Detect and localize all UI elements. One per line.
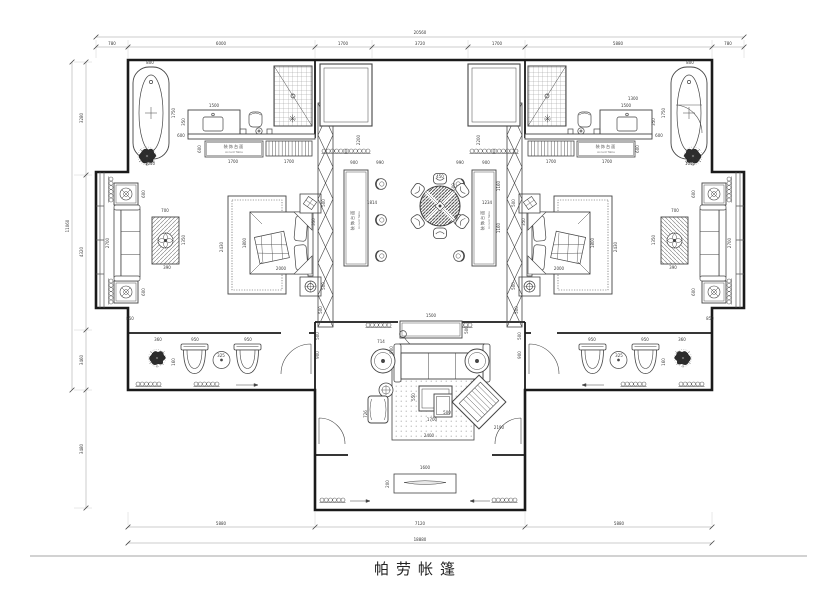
dimension-label: 900 [482,160,490,165]
dimension-label: 500 [321,282,326,290]
closet [320,64,372,154]
dimension-label: 3280 [79,112,84,123]
dining-area [410,174,471,239]
dimension-label: 1750 [171,107,176,118]
dimension-label: 350 [311,218,316,226]
dimension-label: 1500 [621,103,632,108]
dimension-label: 780 [108,41,116,46]
dimension-label: 1800 [590,237,595,248]
dimension-label: 1234 [482,200,493,205]
dimension-label: 2190 [494,425,505,430]
dimension-label: 800 [686,60,694,65]
dimension-label: 1160 [496,180,501,191]
dimension-label: 950 [641,337,649,342]
living-area [319,321,521,503]
dimension-label: 2430 [613,241,618,252]
dimension-label: 7120 [415,521,426,526]
dimension-label: 325 [615,353,623,358]
dimension-label: 2200 [476,134,481,145]
dimension-label: 600 [635,145,640,153]
dimension-label: 350 [181,118,186,126]
dimension-label: 5880 [216,521,227,526]
bay-sofa [114,205,140,281]
dimension-label: 2000 [554,266,565,271]
dimension-label: 950 [588,337,596,342]
plan-title: 帕劳帐篷 [374,560,462,578]
dimension-label: 600 [451,183,456,191]
dimension-label: 500 [517,332,522,340]
dimension-label: 700 [161,208,169,213]
dimension-label: 1160 [496,222,501,233]
dimension-label: 1700 [228,159,239,164]
dimension-label: 450 [436,174,444,179]
dimension-label: 1700 [427,417,438,422]
porch-door-right [495,418,521,444]
dimension-label: 18880 [414,537,427,542]
dimension-label: 900 [350,160,358,165]
dimension-label: 700 [671,208,679,213]
dimension-label: 360 [678,337,686,342]
lattice-cell [318,167,333,199]
accent-label-en-console-right: Accent Table [487,211,491,229]
dimension-label: 500 [321,199,326,207]
dimension-label: 1500 [426,313,437,318]
dimension-label: 600 [141,190,146,198]
dimension-label: 900 [517,351,522,359]
accent-label-zh-right: 装饰台面 [596,143,617,150]
dimension-label: 1350 [651,234,656,245]
dimension-label: 850 [126,316,134,321]
dimension-label: 3460 [79,354,84,365]
dimension-label: 1700 [284,159,295,164]
lattice-cell [318,135,333,167]
dimension-label: 6000 [216,41,227,46]
dimension-label: 500 [318,306,323,314]
dimension-label: 325 [217,353,225,358]
dimension-label: 2200 [356,134,361,145]
dimension-label: 1600 [420,465,431,470]
dimension-label: 160 [171,358,176,366]
deco-stool [379,383,393,397]
dimension-label: 600 [141,288,146,296]
dimension-label: 950 [191,337,199,342]
accent-label-zh-console-right: 装饰台面 [479,210,486,231]
accent-label-en-console-left: Accent Table [357,211,361,229]
dimension-label: 600 [197,145,202,153]
dimension-label: 780 [724,41,732,46]
dimension-label: 1800 [242,237,247,248]
dimension-label: 1350 [181,234,186,245]
dimension-label: 500 [511,282,516,290]
dimension-label: 726 [363,410,368,418]
dimension-label: 990 [376,160,384,165]
dimension-label: 2430 [219,241,224,252]
dimension-label: 600 [691,288,696,296]
dimension-label: 1300 [628,96,639,101]
dimension-label: 350 [651,118,656,126]
accent-label-zh-left: 装饰台面 [224,143,245,150]
dimension-label: 5880 [613,41,624,46]
dimension-label: 2700 [105,237,110,248]
dimension-label: 990 [456,160,464,165]
dimension-label: 714 [377,339,385,344]
dimension-label: 900 [389,346,394,354]
dining-chair [434,228,447,239]
dimension-label: 2400 [424,433,435,438]
dimension-label: 3720 [415,41,426,46]
dimension-label: 1040 [145,161,156,166]
dimension-label: 1700 [492,41,503,46]
dimension-label: 950 [244,337,252,342]
drawing-sheet: 2056078060001700372017005880780588071205… [0,0,837,592]
dimension-label: 20560 [414,30,427,35]
dimension-label: 900 [315,351,320,359]
lounge-door [281,344,311,374]
radiator-cabinet [266,141,312,156]
dimension-label: 1700 [602,159,613,164]
lounge-area [136,344,312,387]
dimension-label: 1700 [546,159,557,164]
lattice-cell [318,231,333,263]
bathtub [133,67,169,159]
dimension-label: 500 [315,332,320,340]
accent-label-zh-console-left: 装饰台面 [349,210,356,231]
dimension-label: 1040 [685,161,696,166]
dimension-label: 2700 [727,237,732,248]
dimension-label: 600 [655,133,663,138]
dimension-label: 390 [669,265,677,270]
porch-step [394,474,456,493]
dimension-label: 2000 [276,266,287,271]
dimension-label: 500 [443,410,451,415]
sofa-console [400,321,462,338]
round-side-table-right [465,349,489,373]
dimension-label: 850 [706,316,714,321]
dimension-label: 1750 [661,107,666,118]
floor-plan: 2056078060001700372017005880780588071205… [0,0,837,592]
dimension-label: 600 [177,133,185,138]
porch-door-left [319,418,345,444]
dimension-label: 1814 [367,200,378,205]
dimension-label: 500 [514,306,519,314]
dimension-label: 360 [154,337,162,342]
dimension-label: 3480 [79,443,84,454]
dimension-label: 4320 [79,246,84,257]
dimension-label: 500 [464,326,469,334]
dimension-label: 550 [411,393,416,401]
dimension-label: 350 [521,218,526,226]
accent-label-en-left: Accent Table [225,150,243,154]
dimension-label: 1500 [209,103,220,108]
shower [274,66,312,126]
dimension-label: 600 [691,190,696,198]
dimension-label: 500 [511,199,516,207]
dimension-label: 390 [163,265,171,270]
dimension-label: 1700 [338,41,349,46]
dimension-label: 5880 [614,521,625,526]
dimension-label: 160 [661,358,666,366]
bay-coffee-table [152,217,179,264]
dimension-label: 11060 [65,219,70,232]
dimension-label: 200 [385,480,390,488]
bench [368,396,388,423]
dimension-label: 800 [146,60,154,65]
accent-label-en-right: Accent Table [597,150,615,154]
